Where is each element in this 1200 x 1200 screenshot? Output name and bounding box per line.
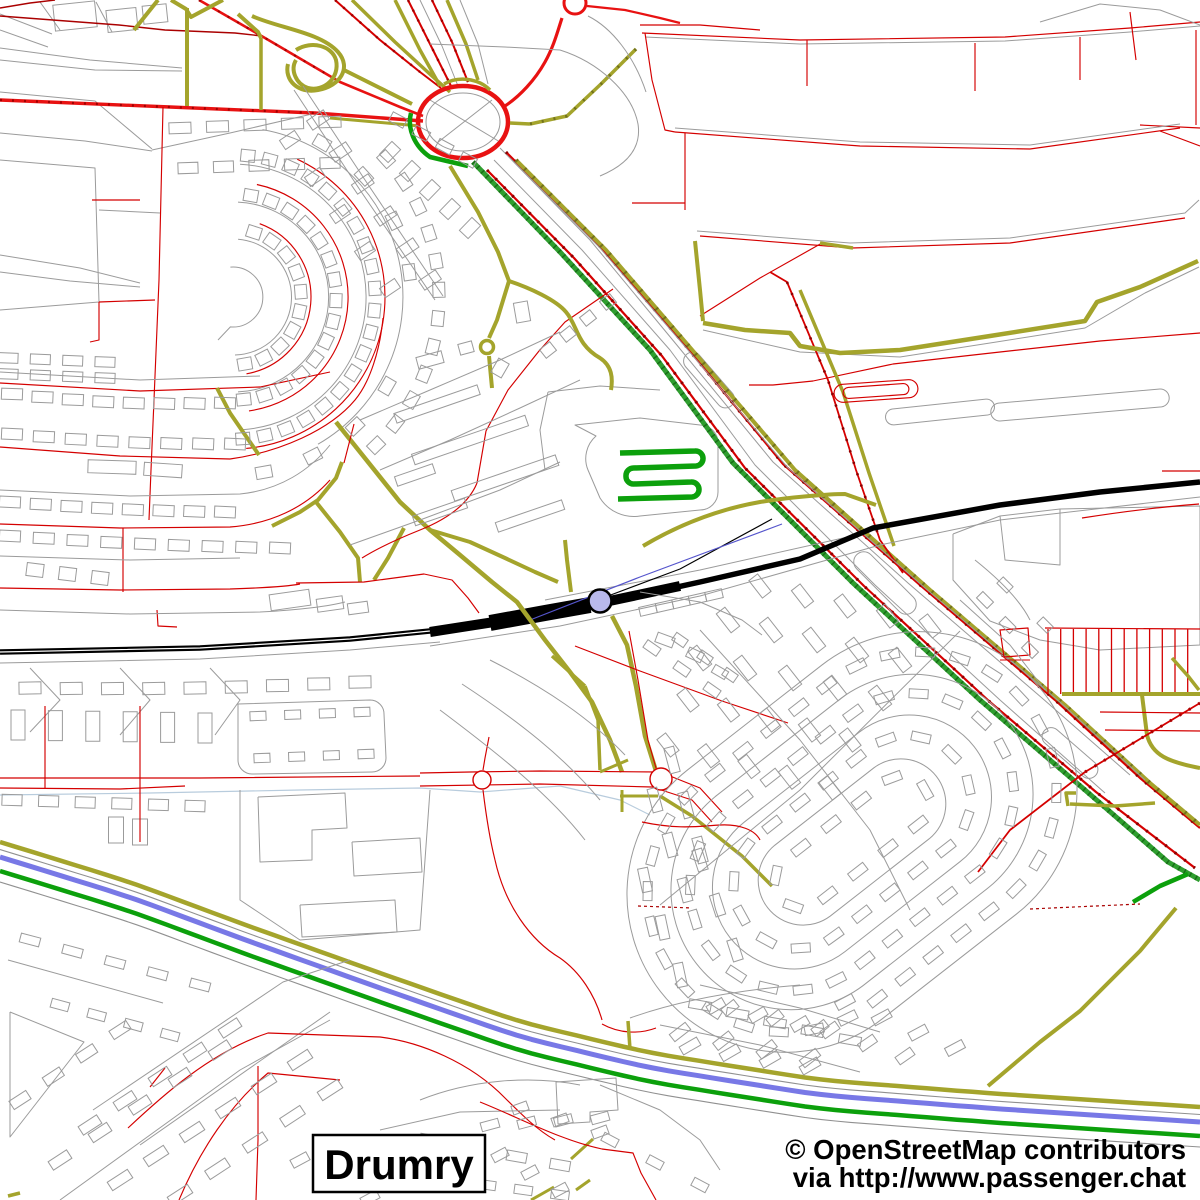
- svg-text:Drumry: Drumry: [324, 1141, 474, 1188]
- svg-text:© OpenStreetMap contributors: © OpenStreetMap contributors: [785, 1134, 1186, 1165]
- svg-text:via http://www.passenger.chat: via http://www.passenger.chat: [793, 1162, 1186, 1193]
